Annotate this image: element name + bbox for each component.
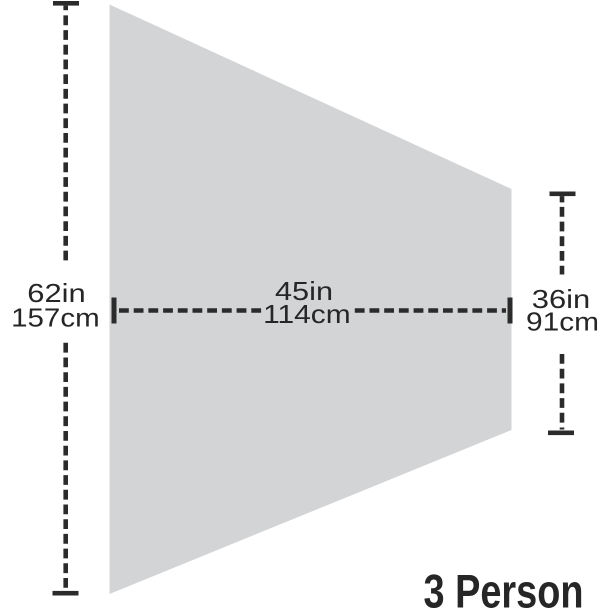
svg-text:3 Person: 3 Person (424, 565, 584, 613)
svg-text:91cm: 91cm (526, 306, 599, 336)
svg-text:157cm: 157cm (11, 302, 100, 332)
svg-text:114cm: 114cm (263, 299, 351, 329)
